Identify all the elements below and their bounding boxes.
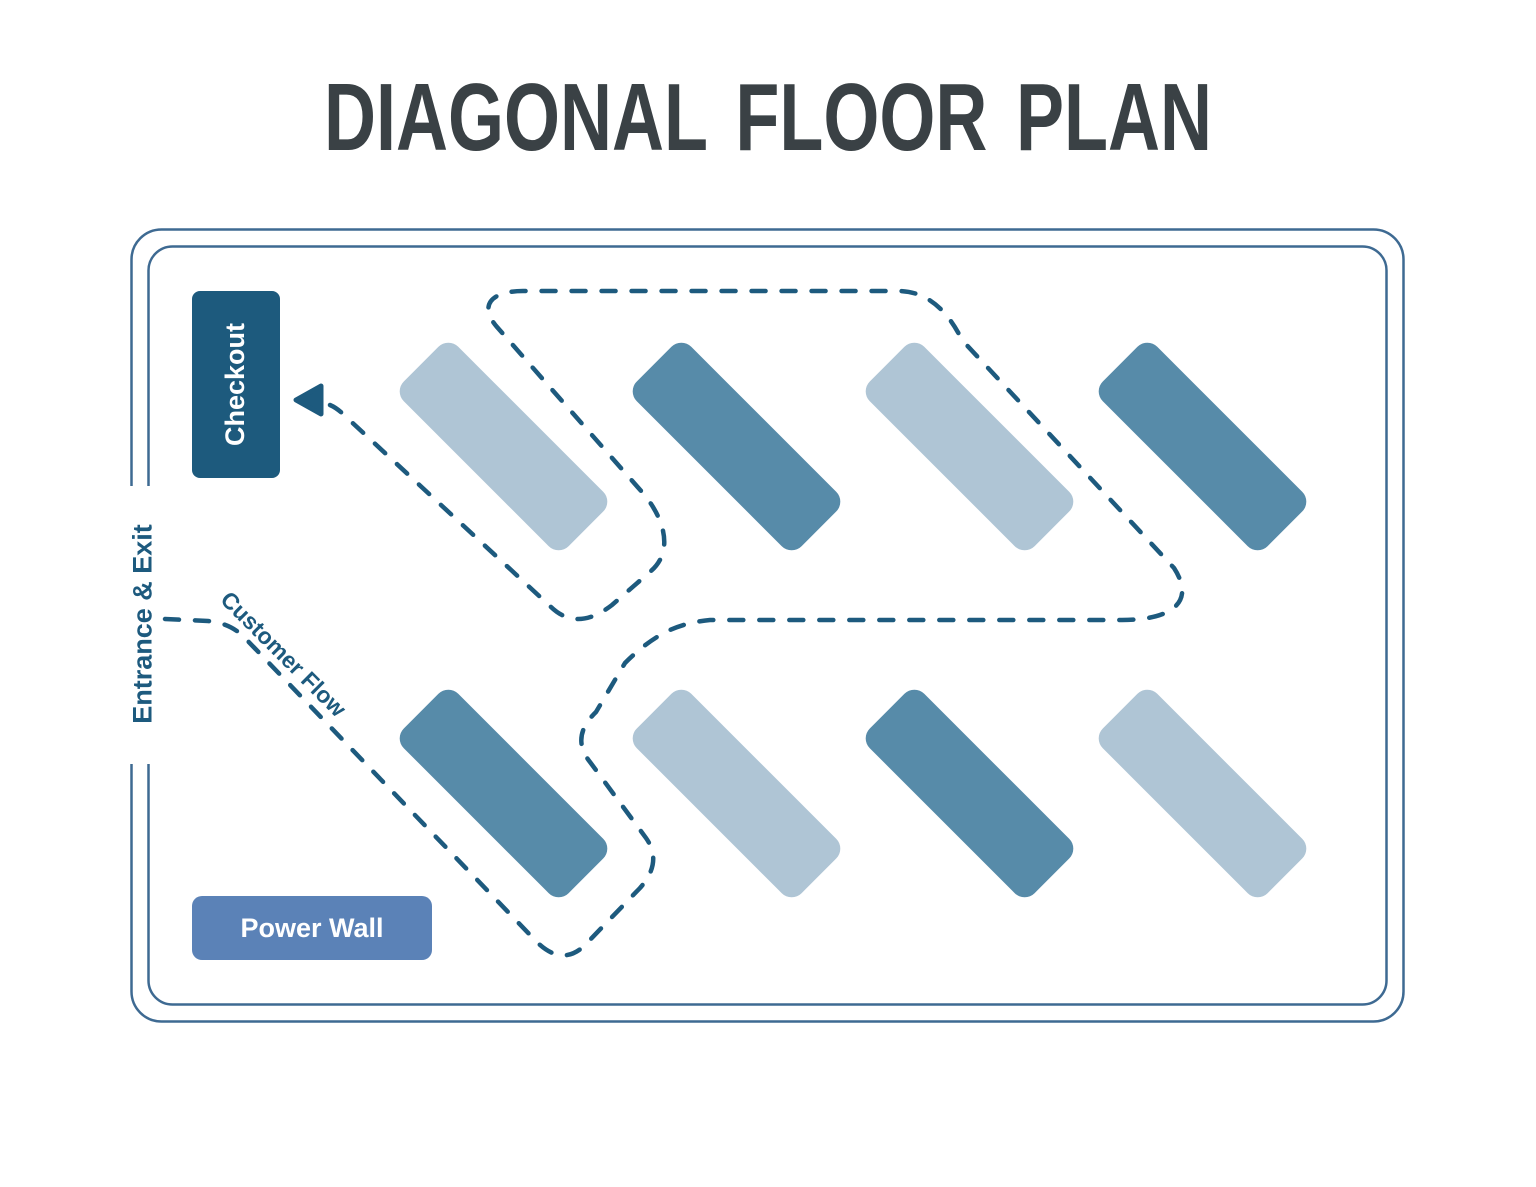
- checkout-zone: Checkout: [192, 291, 280, 478]
- flow-arrowhead-icon: [296, 386, 321, 414]
- checkout-label: Checkout: [221, 323, 252, 446]
- power-wall-label: Power Wall: [240, 913, 383, 944]
- diagonal-floor-plan: DIAGONAL FLOOR PLAN Checkout Entrance & …: [0, 0, 1536, 1187]
- entrance-exit-label: Entrance & Exit: [128, 524, 159, 724]
- store-outline-inner: [149, 247, 1387, 1005]
- power-wall-zone: Power Wall: [192, 896, 432, 960]
